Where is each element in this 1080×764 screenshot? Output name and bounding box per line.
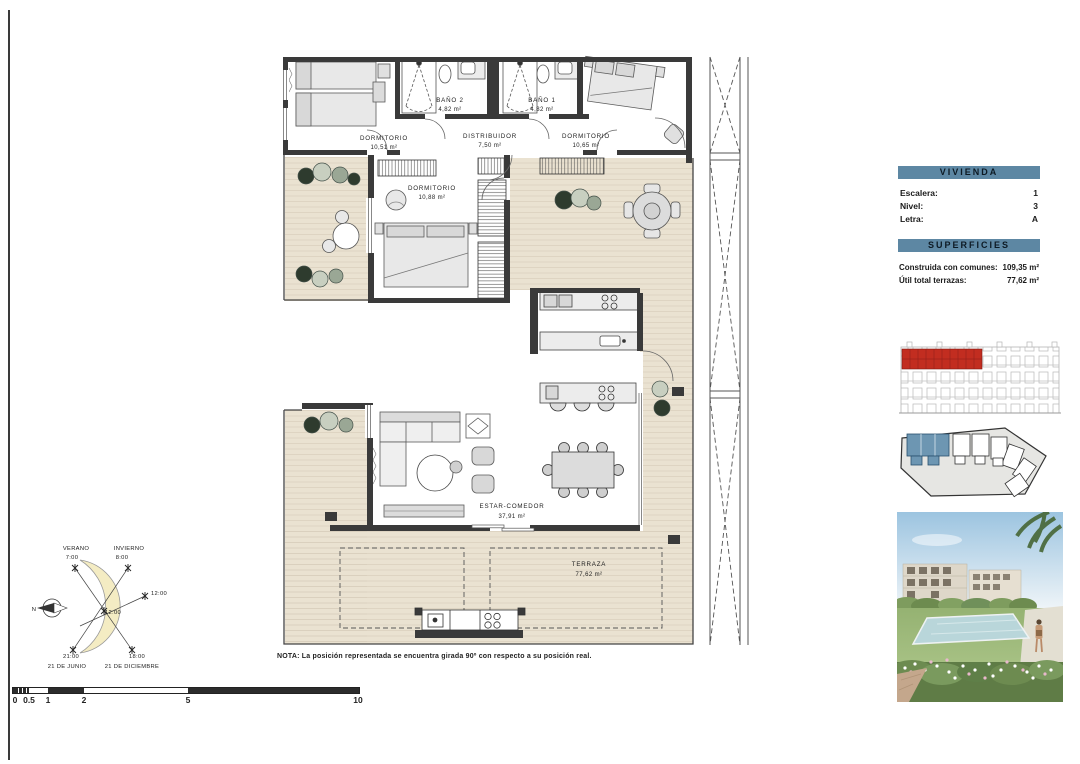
bathroom1-fixtures [503, 59, 580, 113]
pool [913, 614, 1029, 644]
living-room-furniture [373, 412, 494, 517]
north-label: N [32, 607, 37, 613]
svg-text:7,50 m²: 7,50 m² [478, 143, 501, 149]
elevation-drawing [897, 337, 1063, 425]
construida-value: 109,35 m² [1003, 263, 1039, 272]
svg-text:VERANO: VERANO [63, 546, 89, 552]
room-label-estar-comedor: ESTAR-COMEDOR [480, 503, 545, 510]
site-plan [897, 424, 1053, 508]
svg-text:4,82 m²: 4,82 m² [438, 107, 461, 113]
wardrobes [378, 158, 604, 176]
svg-text:21 DE DICIEMBRE: 21 DE DICIEMBRE [105, 664, 159, 670]
dining-table [543, 443, 624, 498]
svg-text:7:00: 7:00 [66, 555, 78, 561]
nivel-row: Nivel: 3 [900, 201, 1038, 211]
room-label-bano1: BAÑO 1 [528, 97, 556, 104]
scale-tick-1: 1 [46, 695, 51, 705]
letra-label: Letra: [900, 214, 924, 224]
util-label: Útil total terrazas: [899, 276, 967, 285]
scale-tick-2: 2 [82, 695, 87, 705]
escalera-value: 1 [1033, 188, 1038, 198]
highlighted-unit-red [902, 349, 982, 369]
flower-bed [897, 658, 1063, 702]
scale-tick-05: 0.5 [23, 695, 35, 705]
bathroom2-fixtures [402, 59, 485, 113]
scale-bar: 0 0.5 1 2 5 10 [12, 687, 362, 707]
vivienda-header: VIVIENDA [898, 166, 1040, 179]
outdoor-kitchen [415, 608, 525, 630]
kitchen-counters [540, 292, 638, 411]
svg-text:21:00: 21:00 [63, 654, 79, 660]
scale-tick-0: 0 [13, 695, 18, 705]
svg-text:12:00: 12:00 [151, 591, 167, 597]
svg-text:18:00: 18:00 [129, 654, 145, 660]
svg-text:8:00: 8:00 [116, 555, 128, 561]
svg-text:10,51 m²: 10,51 m² [371, 145, 398, 151]
util-value: 77,62 m² [1007, 276, 1039, 285]
nivel-value: 3 [1033, 201, 1038, 211]
floor-plan: DORMITORIO 10,51 m² BAÑO 2 4,82 m² DISTR… [272, 48, 772, 658]
room-label-dormitorio3: DORMITORIO [408, 185, 456, 192]
scale-tick-5: 5 [186, 695, 191, 705]
svg-text:INVIERNO: INVIERNO [114, 546, 145, 552]
sun-crescent [80, 560, 120, 653]
sheet-left-border [8, 10, 10, 760]
svg-text:21 DE JUNIO: 21 DE JUNIO [48, 664, 87, 670]
room-label-dormitorio1: DORMITORIO [360, 135, 408, 142]
letra-value: A [1032, 214, 1038, 224]
superficies-header: SUPERFICIES [898, 239, 1040, 252]
escalera-row: Escalera: 1 [900, 188, 1038, 198]
svg-text:4,82 m²: 4,82 m² [530, 107, 553, 113]
drawing-sheet: DORMITORIO 10,51 m² BAÑO 2 4,82 m² DISTR… [0, 0, 1080, 764]
structural-truss [710, 57, 748, 645]
letra-row: Letra: A [900, 214, 1038, 224]
escalera-label: Escalera: [900, 188, 938, 198]
bedroom3-furniture [375, 190, 477, 287]
nivel-label: Nivel: [900, 201, 923, 211]
svg-text:37,91 m²: 37,91 m² [499, 514, 526, 520]
north-compass [37, 599, 67, 617]
room-label-terraza: TERRAZA [572, 561, 607, 568]
sun-diagram: VERANO 7:00 INVIERNO 8:00 12:00 12:00 21… [25, 538, 175, 690]
construida-row: Construida con comunes: 109,35 m² [899, 263, 1039, 272]
construida-label: Construida con comunes: [899, 263, 998, 272]
room-label-distribuidor: DISTRIBUIDOR [463, 133, 517, 140]
svg-text:10,88 m²: 10,88 m² [419, 195, 446, 201]
roof-ticks [907, 342, 1057, 347]
render-photo [897, 512, 1063, 702]
svg-text:12:00: 12:00 [105, 610, 121, 616]
bedroom1-furniture [289, 62, 390, 126]
room-label-dormitorio2: DORMITORIO [562, 133, 610, 140]
orientation-note: NOTA: La posición representada se encuen… [277, 653, 592, 660]
svg-text:77,62 m²: 77,62 m² [576, 572, 603, 578]
room-label-bano2: BAÑO 2 [436, 97, 464, 104]
bedroom2-furniture [580, 56, 686, 145]
scale-tick-10: 10 [353, 695, 362, 705]
util-row: Útil total terrazas: 77,62 m² [899, 276, 1039, 285]
scale-bar-track [12, 687, 360, 694]
cloud [912, 534, 962, 546]
svg-text:10,65 m²: 10,65 m² [573, 143, 600, 149]
